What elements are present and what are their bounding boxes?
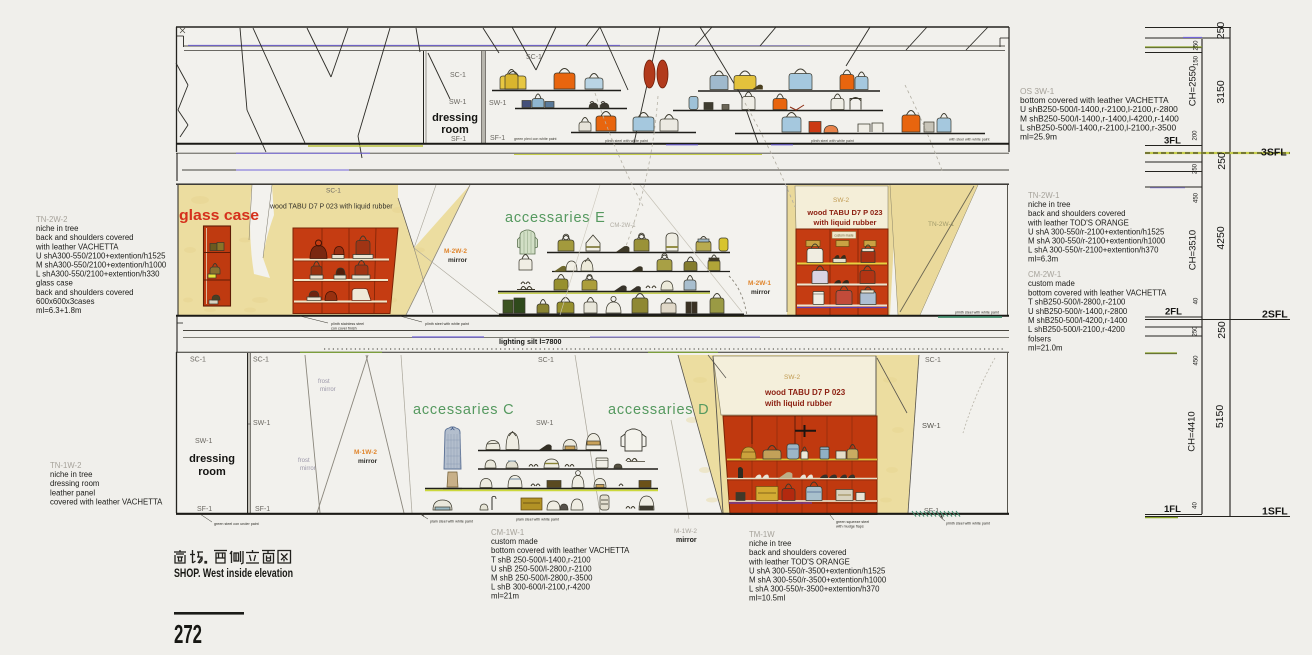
svg-text:200: 200: [1193, 130, 1199, 141]
svg-text:SW-1: SW-1: [449, 99, 466, 106]
svg-text:glass case: glass case: [179, 207, 259, 224]
svg-text:with mudge flaps: with mudge flaps: [836, 525, 864, 529]
svg-text:250: 250: [1193, 326, 1199, 337]
svg-text:plain steel with white paint: plain steel with white paint: [430, 520, 473, 524]
svg-text:with leather TOD'S ORANGE: with leather TOD'S ORANGE: [1027, 218, 1129, 227]
svg-text:niche in tree: niche in tree: [50, 470, 92, 479]
svg-text:niche in tree: niche in tree: [36, 224, 78, 233]
svg-text:with liquid rubber: with liquid rubber: [764, 399, 832, 408]
svg-text:mirror: mirror: [320, 387, 336, 393]
svg-text:450: 450: [1194, 192, 1200, 203]
svg-text:mirror: mirror: [300, 466, 316, 472]
svg-text:L shB 300-600/l-2100,r-4200: L shB 300-600/l-2100,r-4200: [491, 583, 591, 592]
svg-text:L shB250-500/l-2100,r-4200: L shB250-500/l-2100,r-4200: [1028, 325, 1125, 334]
svg-text:room: room: [441, 124, 469, 136]
svg-text:5150: 5150: [1214, 405, 1226, 429]
svg-text:T shB250-500/l-2800,r-2100: T shB250-500/l-2800,r-2100: [1028, 298, 1126, 307]
svg-text:back and shoulders covered: back and shoulders covered: [36, 233, 134, 242]
svg-text:back and shoulders covered: back and shoulders covered: [749, 548, 847, 557]
svg-text:L shA 300-550/r-3500+extentio: L shA 300-550/r-3500+extention/h370: [749, 585, 880, 594]
svg-text:SW-1: SW-1: [489, 100, 506, 107]
svg-text:SF-1: SF-1: [451, 136, 466, 143]
svg-text:plinth steel with white paint: plinth steel with white paint: [946, 522, 990, 526]
svg-text:TN-2W-2: TN-2W-2: [36, 215, 67, 224]
svg-text:250: 250: [1193, 163, 1199, 174]
svg-text:M-2W-1: M-2W-1: [748, 280, 771, 287]
svg-text:back and shoulders covered: back and shoulders covered: [1028, 209, 1126, 218]
svg-text:1FL: 1FL: [1164, 504, 1181, 515]
svg-text:40: 40: [1193, 502, 1199, 509]
svg-text:SC-1: SC-1: [190, 357, 206, 364]
svg-text:dressing room: dressing room: [50, 479, 99, 488]
svg-text:room: room: [198, 466, 226, 478]
svg-text:covered with leather VACHETTA: covered with leather VACHETTA: [50, 497, 163, 506]
svg-text:250: 250: [1216, 321, 1228, 339]
svg-text:SC-1: SC-1: [450, 72, 466, 79]
svg-text:250: 250: [1194, 40, 1200, 51]
svg-text:with leather TOD'S ORANGE: with leather TOD'S ORANGE: [748, 557, 850, 566]
svg-text:green squeeze steel: green squeeze steel: [836, 520, 869, 524]
svg-text:600x600x3cases: 600x600x3cases: [36, 297, 95, 306]
svg-text:ml=21.0m: ml=21.0m: [1028, 344, 1062, 353]
svg-text:U shA300-550/2100+extention/h1: U shA300-550/2100+extention/h1525: [36, 251, 166, 260]
svg-text:custom made: custom made: [834, 234, 853, 238]
svg-text:U shA 300-550/r-2100+extention: U shA 300-550/r-2100+extention/h1525: [1028, 227, 1165, 236]
svg-text:mirror: mirror: [358, 458, 378, 465]
svg-text:272: 272: [174, 619, 202, 649]
svg-text:with steel with white paint: with steel with white paint: [949, 138, 990, 142]
svg-text:L shA300-550/2100+extention/h: L shA300-550/2100+extention/h330: [36, 270, 160, 279]
svg-text:40: 40: [1194, 297, 1200, 304]
svg-text:lighting silt l=7800: lighting silt l=7800: [499, 337, 562, 346]
svg-text:mirror: mirror: [676, 537, 697, 544]
svg-text:niche in tree: niche in tree: [1028, 200, 1070, 209]
svg-text:U shA 300-550/r-3500+extention: U shA 300-550/r-3500+extention/h1525: [749, 566, 886, 575]
svg-text:M shA 300-550/r-2100+extention: M shA 300-550/r-2100+extention/h1000: [1028, 237, 1166, 246]
svg-text:U shB250-500/r-1400,r-2800: U shB250-500/r-1400,r-2800: [1028, 307, 1128, 316]
svg-text:bottom covered with leather VA: bottom covered with leather VACHETTA: [491, 546, 630, 555]
svg-text:SW-2: SW-2: [784, 374, 801, 381]
svg-text:CM-1W-1: CM-1W-1: [491, 528, 524, 537]
svg-text:SF-1: SF-1: [255, 506, 270, 513]
svg-text:with liquid rubber: with liquid rubber: [813, 218, 877, 227]
svg-text:SW-1: SW-1: [253, 420, 270, 427]
svg-text:M shB 250-500/l-2800,r-3500: M shB 250-500/l-2800,r-3500: [491, 574, 593, 583]
svg-text:2FL: 2FL: [1165, 307, 1182, 318]
svg-text:SC-1: SC-1: [925, 357, 941, 364]
svg-text:M shA300-550/2100+extention/h1: M shA300-550/2100+extention/h1000: [36, 261, 167, 270]
svg-text:M-2W-2: M-2W-2: [444, 248, 467, 255]
svg-text:3SFL: 3SFL: [1261, 147, 1287, 159]
svg-text:plinth stainless steel: plinth stainless steel: [331, 322, 364, 326]
svg-text:SW-2: SW-2: [833, 197, 850, 204]
svg-text:SC-1: SC-1: [253, 357, 269, 364]
svg-text:accessaries C: accessaries C: [413, 402, 514, 418]
svg-text:wood TABU D7 P 023 with liquid: wood TABU D7 P 023 with liquid rubber: [269, 204, 393, 211]
svg-text:SW-1: SW-1: [195, 438, 212, 445]
svg-text:frost: frost: [318, 379, 330, 385]
svg-text:3FL: 3FL: [1164, 136, 1181, 147]
svg-text:SC-1: SC-1: [526, 54, 542, 61]
svg-text:niche in tree: niche in tree: [749, 539, 791, 548]
svg-text:custom made: custom made: [1028, 279, 1075, 288]
svg-text:T shB 250-500/l-1400,r-2100: T shB 250-500/l-1400,r-2100: [491, 555, 591, 564]
svg-text:SC-1: SC-1: [538, 357, 554, 364]
svg-text:CH=2550: CH=2550: [1188, 66, 1199, 106]
svg-text:SF-1: SF-1: [197, 506, 212, 513]
svg-text:plain steel with white paint: plain steel with white paint: [516, 518, 559, 522]
svg-text:TN-2W-1: TN-2W-1: [1028, 191, 1059, 200]
svg-text:folsers: folsers: [1028, 334, 1051, 343]
svg-text:SF-1: SF-1: [490, 135, 505, 142]
svg-text:4250: 4250: [1215, 226, 1227, 250]
svg-text:plinth steel with white paint: plinth steel with white paint: [811, 139, 854, 143]
svg-text:green plexi con white paint: green plexi con white paint: [514, 137, 557, 141]
svg-text:150: 150: [1194, 55, 1200, 66]
svg-text:mirror: mirror: [751, 289, 771, 296]
svg-text:accessaries E: accessaries E: [505, 210, 606, 226]
svg-text:con cover finish: con cover finish: [331, 327, 357, 331]
svg-text:SC-1: SC-1: [326, 188, 341, 195]
svg-text:plinth steel with white paint: plinth steel with white paint: [605, 139, 648, 143]
svg-text:plinth steel with white paint: plinth steel with white paint: [425, 322, 469, 326]
svg-text:CH=4410: CH=4410: [1187, 411, 1198, 451]
svg-text:U shB 250-500/l-2800,r-2100: U shB 250-500/l-2800,r-2100: [491, 564, 592, 573]
svg-text:glass case: glass case: [36, 279, 73, 288]
svg-text:SW-1: SW-1: [536, 420, 553, 427]
svg-text:ml=25.9m: ml=25.9m: [1020, 132, 1057, 142]
svg-text:SW-1: SW-1: [922, 421, 941, 430]
svg-text:SHOP. West inside elevation: SHOP. West inside elevation: [174, 568, 293, 580]
svg-text:accessaries D: accessaries D: [608, 402, 709, 418]
svg-text:ml=21m: ml=21m: [491, 592, 519, 601]
svg-text:TN-2W-1: TN-2W-1: [928, 221, 955, 228]
svg-text:green steel con under paint: green steel con under paint: [214, 522, 259, 526]
svg-text:mirror: mirror: [448, 257, 468, 264]
svg-text:leather panel: leather panel: [50, 488, 95, 497]
svg-text:ml=10.5ml: ml=10.5ml: [749, 594, 785, 603]
svg-text:M shA 300-550/r-3500+extention: M shA 300-550/r-3500+extention/h1000: [749, 576, 887, 585]
svg-text:back and shoulders covered: back and shoulders covered: [36, 288, 134, 297]
svg-text:2SFL: 2SFL: [1262, 309, 1288, 321]
svg-text:1SFL: 1SFL: [1262, 506, 1288, 518]
svg-text:custom made: custom made: [491, 537, 538, 546]
svg-text:TM-1W: TM-1W: [749, 530, 775, 539]
svg-text:M shB250-500/l-4200,r-1400: M shB250-500/l-4200,r-1400: [1028, 316, 1128, 325]
svg-text:M-1W-2: M-1W-2: [354, 449, 377, 456]
svg-text:L shA 300-550/r-2100+extentio: L shA 300-550/r-2100+extention/h370: [1028, 246, 1159, 255]
svg-text:CM-2W-1: CM-2W-1: [1028, 270, 1061, 279]
svg-text:CH=3510: CH=3510: [1188, 230, 1199, 270]
svg-text:with leather VACHETTA: with leather VACHETTA: [35, 242, 119, 251]
svg-text:3150: 3150: [1215, 80, 1227, 104]
svg-text:plinth steel with white paint: plinth steel with white paint: [955, 311, 999, 315]
svg-text:TN-1W-2: TN-1W-2: [50, 461, 81, 470]
svg-text:frost: frost: [298, 458, 310, 464]
svg-text:wood TABU D7 P 023: wood TABU D7 P 023: [764, 388, 846, 397]
svg-text:250: 250: [1215, 22, 1227, 40]
svg-text:dressing: dressing: [189, 453, 235, 465]
svg-text:ml=6.3+1.8m: ml=6.3+1.8m: [36, 306, 82, 315]
svg-text:M-1W-2: M-1W-2: [674, 528, 697, 535]
svg-text:450: 450: [1194, 355, 1200, 366]
svg-text:ml=6.3m: ml=6.3m: [1028, 255, 1058, 264]
svg-text:dressing: dressing: [432, 112, 478, 124]
svg-text:250: 250: [1216, 152, 1228, 170]
svg-text:bottom covered with leather VA: bottom covered with leather VACHETTA: [1028, 288, 1167, 297]
svg-text:wood TABU D7 P 023: wood TABU D7 P 023: [806, 208, 882, 217]
